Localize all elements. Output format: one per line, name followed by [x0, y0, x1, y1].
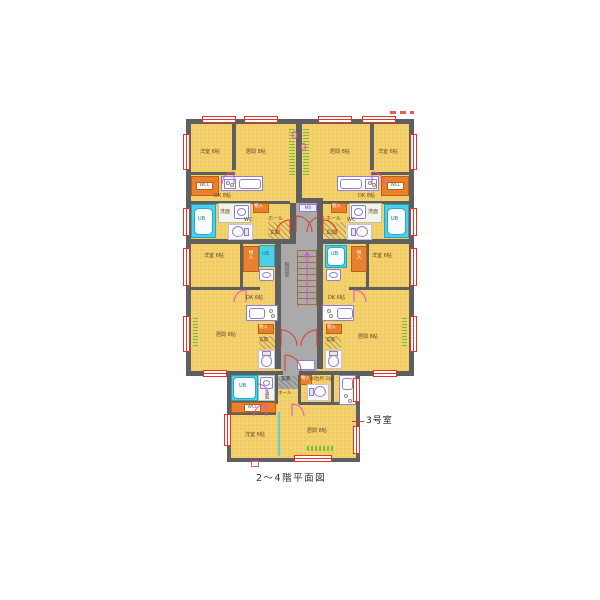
lower-right-genkan-label: 玄関 — [326, 339, 335, 344]
vent-marker — [251, 461, 259, 467]
meter-box-label: MB — [305, 206, 312, 211]
wall — [371, 172, 409, 175]
sink-icon — [326, 269, 341, 281]
kitchen-sink — [337, 308, 353, 319]
wall — [317, 198, 323, 369]
upper-left-closet-chip: WCL — [196, 182, 213, 190]
burner — [348, 399, 352, 403]
burner — [327, 309, 331, 313]
upper-right-dk-label: DK 8帖 — [358, 194, 375, 200]
upper-left-dk-label: DK 8帖 — [214, 194, 231, 200]
planter-marks — [303, 127, 309, 175]
planter-marks — [402, 318, 407, 346]
lower-right-living-label: 居間 8帖 — [358, 335, 378, 341]
upper-left-kitchen-counter — [221, 176, 263, 191]
window — [353, 378, 360, 402]
lower-right-dk-label: DK 6帖 — [328, 296, 345, 302]
room3-living-label: 居間 8帖 — [307, 429, 327, 435]
toilet-tank — [351, 228, 356, 236]
window — [410, 208, 417, 236]
window — [183, 248, 190, 286]
room3-bedroom-label: 洋室 6帖 — [245, 433, 265, 439]
storage-label: 物入 — [332, 205, 341, 210]
wall — [370, 124, 374, 170]
upper-right-bath-label: UB — [391, 217, 398, 223]
lower-right-kitchen-counter — [322, 305, 354, 321]
window — [183, 134, 190, 170]
stairwell-label: 階段室 — [283, 262, 289, 277]
drawing-caption: 2～4階平面図 — [256, 470, 326, 484]
toilet-icon — [314, 386, 326, 397]
shoe-cabinet — [297, 360, 315, 370]
toilet-icon — [328, 355, 339, 367]
burner — [329, 314, 333, 318]
vine-scribble — [301, 143, 306, 151]
sink-icon — [260, 377, 273, 389]
storage-label: 物入 — [254, 205, 263, 210]
window — [294, 455, 332, 462]
kitchen-sink — [340, 179, 362, 189]
wall — [232, 124, 236, 170]
lower-right-bedroom-label: 洋室 6帖 — [372, 254, 392, 260]
lower-left-genkan-label: 玄関 — [259, 339, 268, 344]
lower-left-kitchen-counter — [246, 305, 278, 321]
closet-label: 物入 — [355, 250, 360, 259]
planter-marks — [193, 318, 198, 346]
kitchen-sink — [249, 308, 265, 319]
toilet-tank — [309, 388, 314, 396]
upper-right-kitchen-counter — [337, 176, 379, 191]
callout-leader-line — [352, 421, 364, 422]
upper-left-genkan-label: 玄関 — [270, 231, 280, 237]
window — [202, 116, 236, 123]
upper-right-closet-chip: WCL — [387, 182, 404, 190]
upper-left-wc-label: WC — [244, 218, 252, 224]
room3-wash-label: 洗面 — [263, 390, 268, 399]
window — [224, 414, 231, 446]
wcl-label: WCL — [199, 183, 209, 188]
burner — [230, 183, 234, 187]
toilet-tank — [329, 351, 338, 356]
toilet-icon — [232, 226, 244, 237]
burner — [344, 394, 348, 398]
closet-label: 物入 — [247, 250, 252, 259]
sink-bowl — [262, 272, 271, 278]
wall — [349, 287, 409, 290]
dimension-marks — [390, 111, 414, 114]
wall — [290, 203, 296, 244]
wall — [191, 172, 235, 175]
upper-right-genkan-label: 玄関 — [326, 231, 336, 237]
corridor-doorway — [283, 369, 299, 376]
window — [353, 426, 360, 454]
room3-wcl-chip: WCL — [244, 404, 261, 412]
floor-plan-canvas: MB 階段室 洋室 6帖 居間 8帖 WCL DK 8帖 UB 洗面 WC 物入… — [0, 0, 600, 600]
window — [362, 116, 396, 123]
lower-right-bath-label: UB — [331, 252, 338, 258]
sink-bowl — [237, 208, 246, 216]
sink-bowl — [329, 272, 338, 278]
window — [318, 116, 352, 123]
toilet-icon — [261, 355, 272, 367]
lower-left-living-label: 居間 8帖 — [216, 333, 236, 339]
window — [183, 316, 190, 352]
toilet-tank — [244, 228, 249, 236]
window — [410, 248, 417, 286]
storage-label: 物入 — [259, 326, 268, 331]
toilet-icon — [356, 226, 368, 237]
upper-left-bedroom-label: 洋室 6帖 — [200, 150, 220, 156]
room3-hall-label: ホール — [278, 392, 292, 397]
upper-left-wash-label: 洗面 — [220, 210, 230, 216]
upper-right-wc-label: WC — [347, 218, 355, 224]
burner — [269, 309, 273, 313]
window — [203, 370, 227, 377]
upper-right-bedroom-label: 洋室 6帖 — [378, 150, 398, 156]
toilet-tank — [262, 351, 271, 356]
room-divider-track — [278, 412, 280, 456]
window — [183, 208, 190, 236]
burner — [271, 314, 275, 318]
window — [410, 316, 417, 352]
window — [373, 370, 397, 377]
vine-scribble — [292, 131, 297, 139]
unit-callout: 3号室 — [366, 413, 393, 426]
stair-treads — [297, 250, 317, 306]
lower-left-bedroom-label: 洋室 6帖 — [204, 254, 224, 260]
sink-bowl — [354, 208, 363, 216]
sink-icon — [259, 269, 274, 281]
storage-label: 物入 — [327, 326, 336, 331]
lower-left-dk-label: DK 6帖 — [246, 296, 263, 302]
meter-box: MB — [299, 204, 317, 212]
sink-bowl — [263, 380, 270, 386]
laundry-pole-marks — [307, 446, 333, 451]
wall — [191, 287, 260, 290]
room3-kitchen-label: 台所 2帖 — [315, 378, 333, 383]
window — [410, 134, 417, 170]
upper-left-living-label: 居間 8帖 — [246, 150, 266, 156]
kitchen-sink — [239, 179, 261, 189]
wcl-label: WCL — [390, 183, 400, 188]
room3-bath-label: UB — [239, 384, 246, 390]
window — [244, 116, 278, 123]
upper-right-living-label: 居間 8帖 — [330, 150, 350, 156]
burner — [372, 183, 376, 187]
kitchen-sink — [342, 378, 353, 390]
upper-right-wash-label: 洗面 — [368, 210, 378, 216]
lower-left-bath-label: UB — [262, 252, 269, 258]
wcl-label: WCL — [247, 405, 257, 410]
upper-left-bath-label: UB — [198, 217, 205, 223]
room3-genkan-label: 玄関 — [281, 378, 290, 383]
